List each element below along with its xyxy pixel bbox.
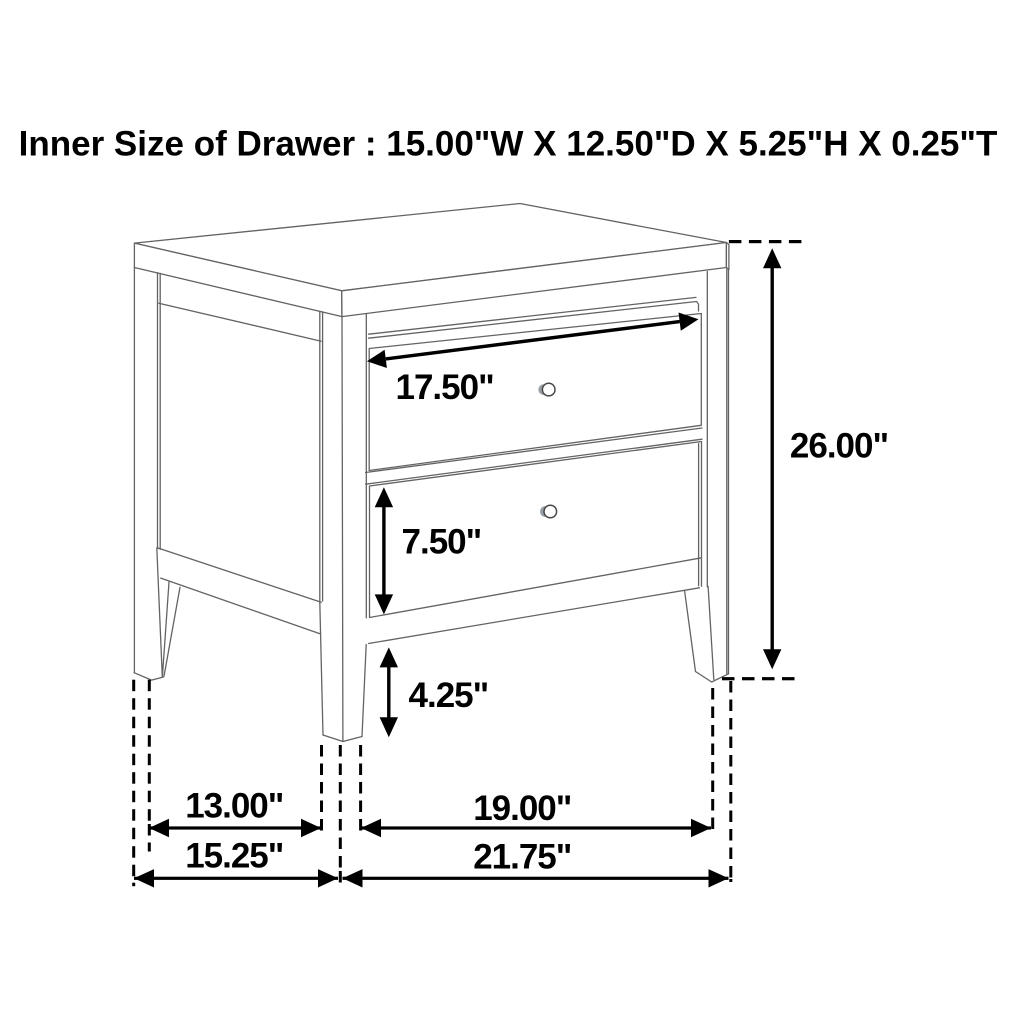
svg-text:19.00": 19.00": [473, 789, 571, 828]
svg-text:26.00": 26.00": [790, 427, 888, 466]
svg-text:13.00": 13.00": [185, 787, 283, 826]
svg-text:15.25": 15.25": [185, 837, 283, 876]
svg-text:Inner Size of Drawer : 15.00"W: Inner Size of Drawer : 15.00"W X 12.50"D…: [19, 125, 998, 164]
svg-text:7.50": 7.50": [402, 523, 482, 562]
svg-text:17.50": 17.50": [396, 368, 494, 407]
svg-text:21.75": 21.75": [473, 838, 571, 877]
svg-text:4.25": 4.25": [409, 676, 489, 715]
